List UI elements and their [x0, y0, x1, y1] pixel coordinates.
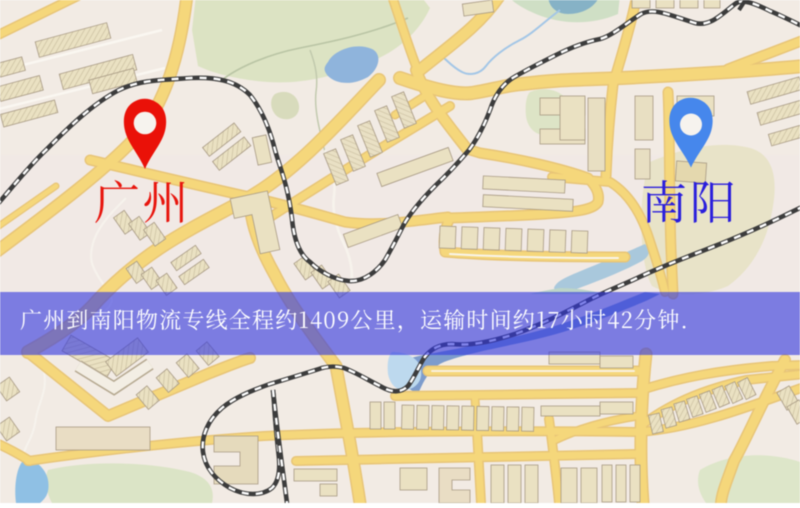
svg-text:南阳: 南阳	[641, 167, 739, 233]
svg-text:广州: 广州	[94, 167, 191, 233]
svg-text:广州到南阳物流专线全程约1409公里，运输时间约17小时42: 广州到南阳物流专线全程约1409公里，运输时间约17小时42分钟.	[20, 304, 689, 335]
